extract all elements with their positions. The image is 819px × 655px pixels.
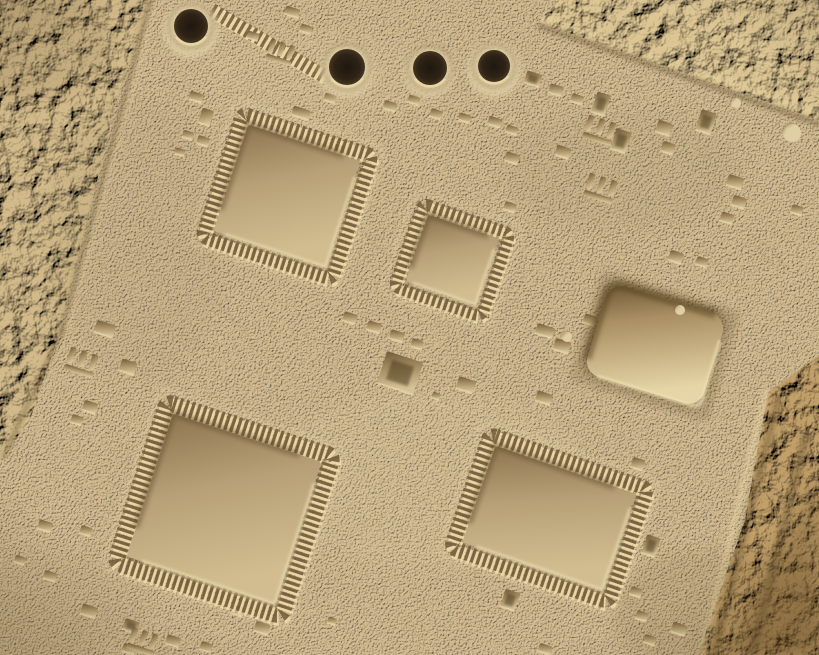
sand-pebble: [675, 305, 685, 315]
drill-hole: [320, 44, 374, 98]
drill-hole: [163, 2, 219, 58]
hole-pit: [478, 50, 510, 82]
sand-pebble: [783, 124, 801, 142]
hole-pit: [174, 9, 208, 43]
hole-pit: [329, 49, 365, 85]
photo-frame: [0, 0, 819, 655]
sand-pebble: [731, 98, 741, 108]
sand-covered-circuit-board-photo: [0, 0, 819, 655]
hole-pit: [413, 51, 447, 85]
drill-hole: [467, 43, 521, 97]
drill-hole: [405, 46, 455, 97]
sand-pebble: [562, 332, 572, 342]
